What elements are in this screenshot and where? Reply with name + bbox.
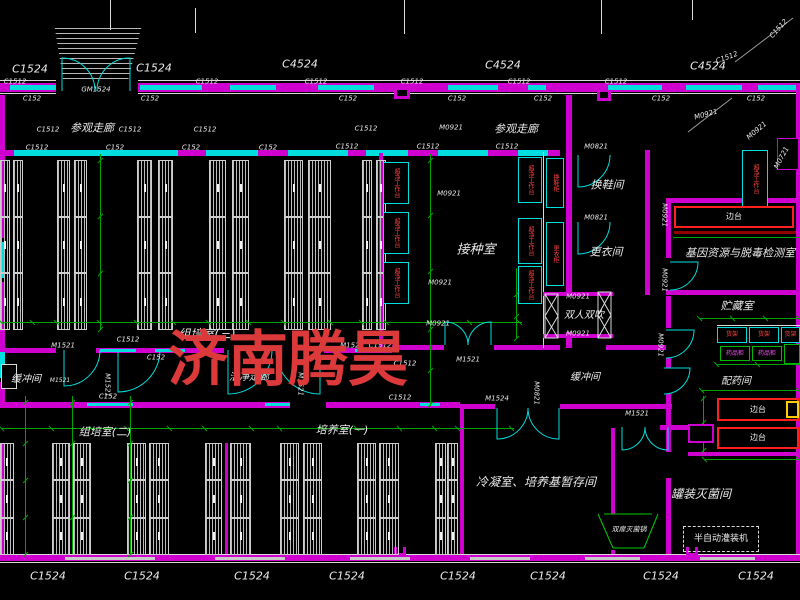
text-label: C1512: [26, 145, 49, 152]
door-arc: [670, 262, 698, 290]
text-label: C1524: [30, 571, 66, 582]
text-label: C1524: [124, 571, 160, 582]
text-label: C1524: [234, 571, 270, 582]
text-label: C152: [259, 145, 277, 152]
text-label: C1512: [117, 337, 140, 344]
text-label: C1512: [194, 127, 217, 134]
text-label: 缓冲间: [11, 375, 41, 385]
text-label: C1512: [119, 127, 142, 134]
floorplan-svg: [0, 0, 800, 600]
text-label: M0921: [566, 294, 590, 301]
text-label: C152: [182, 145, 200, 152]
text-label: M1524: [485, 396, 509, 403]
watermark-text: 济南腾昊: [168, 330, 408, 390]
text-label: M0921: [426, 321, 450, 328]
text-label: 配药间: [721, 377, 751, 387]
air-shower-unit: [545, 294, 558, 338]
text-label: 参观走廊: [494, 124, 538, 135]
text-label: 基因资源与脱毒检测室: [685, 248, 795, 259]
door-arc: [645, 427, 668, 450]
text-label: C1512: [4, 79, 27, 86]
text-label: C1512: [196, 79, 219, 86]
text-label: 参观走廊: [70, 123, 114, 134]
text-label: C1512: [37, 127, 60, 134]
text-label: C1512: [496, 144, 519, 151]
text-label: M0921: [437, 191, 461, 198]
text-label: C4524: [485, 60, 521, 71]
text-label: M0821: [584, 144, 608, 151]
text-label: 双扉灭菌锅: [612, 527, 647, 534]
text-label: C152: [747, 96, 765, 103]
text-label: C152: [141, 96, 159, 103]
text-label: 贮藏室: [721, 301, 754, 312]
text-label: 缓冲间: [570, 373, 600, 383]
text-label: 换鞋间: [591, 180, 624, 191]
text-label: 双人双吹: [564, 311, 604, 321]
text-label: C1512: [355, 126, 378, 133]
text-label: GM1524: [81, 87, 110, 94]
text-label: C4524: [282, 59, 318, 70]
text-label: M1521: [51, 343, 75, 350]
text-label: C1524: [530, 571, 566, 582]
text-label: C152: [99, 394, 117, 401]
text-label: 冷凝室、培养基暂存间: [476, 476, 596, 488]
text-label: M1521: [50, 378, 70, 384]
text-label: M1521: [456, 357, 480, 364]
text-label: C1512: [401, 79, 424, 86]
text-label: M0921: [661, 203, 668, 227]
text-label: C152: [23, 96, 41, 103]
door-arc: [664, 368, 690, 394]
text-label: M0821: [533, 381, 540, 405]
text-label: C152: [534, 96, 552, 103]
door-arc: [666, 330, 694, 358]
door-arc: [622, 427, 645, 450]
door-arc: [468, 322, 491, 345]
text-label: C152: [106, 145, 124, 152]
text-label: C1512: [389, 395, 412, 402]
text-label: C1524: [643, 571, 679, 582]
door-arc: [528, 408, 559, 439]
text-label: M0821: [584, 215, 608, 222]
text-label: C1512: [417, 144, 440, 151]
text-label: 接种室: [456, 244, 495, 257]
text-label: C1512: [508, 79, 531, 86]
text-label: C152: [448, 96, 466, 103]
text-label: 罐装灭菌间: [671, 488, 731, 500]
text-label: C1524: [329, 571, 365, 582]
text-label: M0921: [439, 125, 463, 132]
text-label: M0921: [657, 333, 664, 357]
text-label: C1524: [738, 571, 774, 582]
text-label: 培养室(一): [316, 425, 369, 436]
text-label: C152: [652, 96, 670, 103]
text-label: C1512: [336, 144, 359, 151]
text-label: 更衣间: [590, 247, 623, 258]
text-label: C152: [339, 96, 357, 103]
floorplan-canvas: 济南腾昊 超净工作台超净工作台超净工作台超净工作台超净工作台超净工作台超净工作台…: [0, 0, 800, 600]
text-label: M1521: [625, 411, 649, 418]
text-label: 组培室(二): [79, 427, 132, 438]
text-label: M0921: [428, 280, 452, 287]
door-arc: [497, 408, 528, 439]
text-label: C152: [147, 355, 165, 362]
text-label: C1512: [305, 79, 328, 86]
text-label: C1524: [136, 63, 172, 74]
text-label: C1512: [605, 79, 628, 86]
text-label: C1524: [440, 571, 476, 582]
text-label: M0921: [566, 331, 590, 338]
text-label: M0921: [661, 268, 668, 292]
text-label: C1524: [12, 64, 48, 75]
